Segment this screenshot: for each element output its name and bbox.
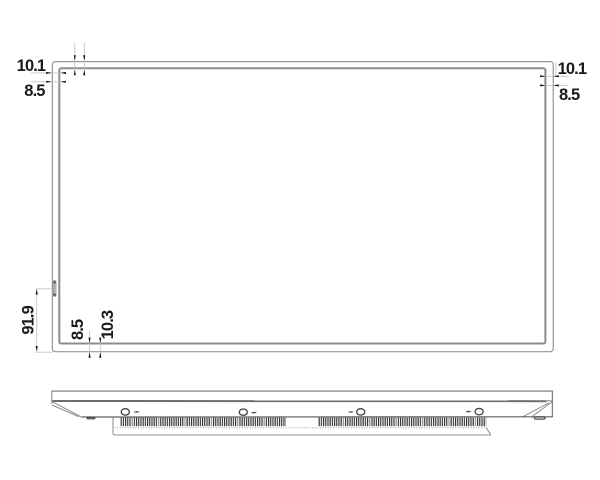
svg-text:10.3: 10.3 [99,310,117,339]
svg-text:10.1: 10.1 [17,57,46,75]
svg-text:10.1: 10.1 [558,60,587,78]
svg-text:91.9: 91.9 [19,305,37,334]
svg-text:8.5: 8.5 [24,82,45,100]
svg-text:8.5: 8.5 [69,319,87,340]
svg-text:8.5: 8.5 [559,86,580,104]
